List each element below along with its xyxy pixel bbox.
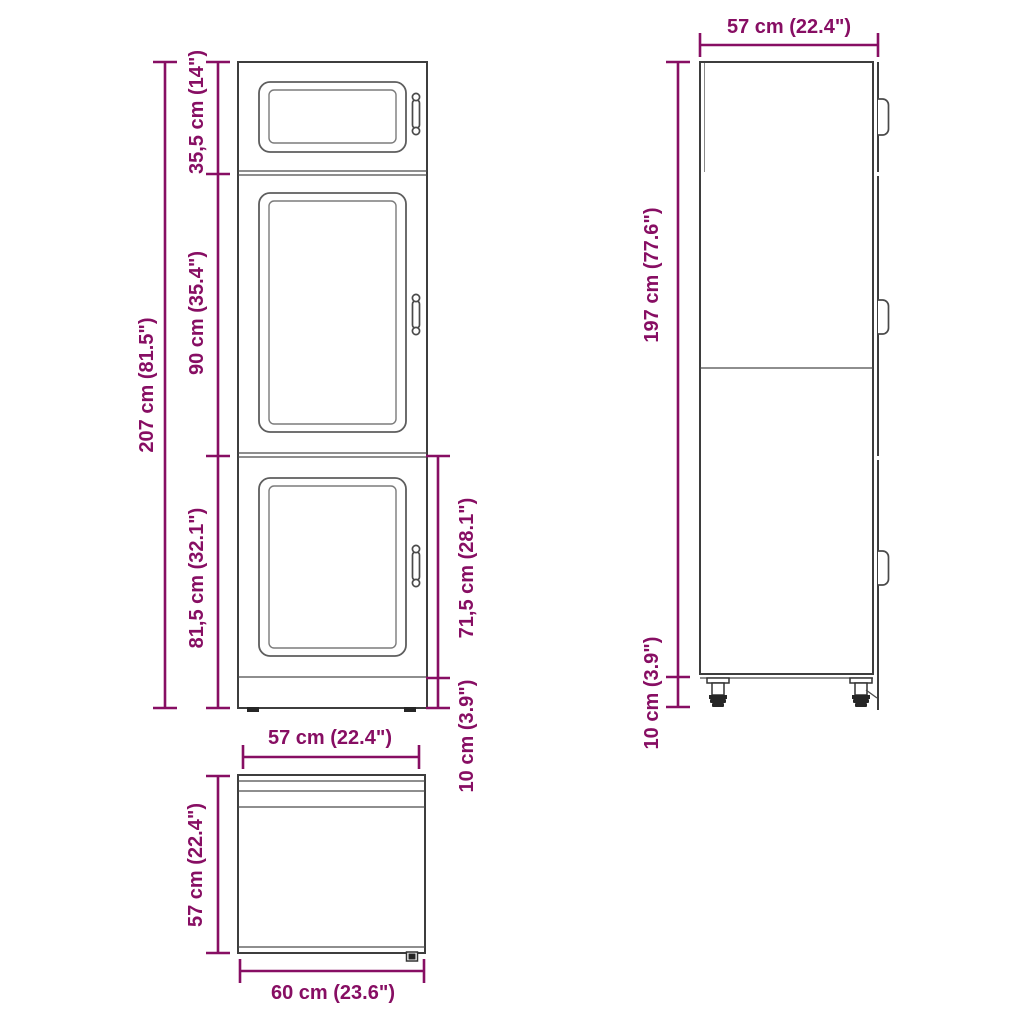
label-side-depth: 57 cm (22.4") [727, 16, 851, 38]
front-right-foot [404, 707, 416, 712]
label-carcass-height: 197 cm (77.6") [641, 207, 663, 342]
front-top-door-handle-icon [412, 93, 419, 134]
side-middle-handle-icon [878, 300, 889, 334]
front-view [238, 62, 427, 712]
top-view [238, 775, 425, 961]
front-carcass [238, 62, 427, 708]
label-total-width: 60 cm (23.6") [271, 982, 395, 1004]
drawing-canvas: 207 cm (81.5") 35,5 cm (14") 90 cm (35.4… [0, 0, 1024, 1024]
label-total-height: 207 cm (81.5") [136, 317, 158, 452]
cabinet-dimension-drawing: 207 cm (81.5") 35,5 cm (14") 90 cm (35.4… [0, 0, 1024, 1024]
label-top-door-height: 35,5 cm (14") [186, 50, 208, 174]
top-view-handle-icon [407, 952, 418, 961]
label-lower-section-height: 81,5 cm (32.1") [186, 508, 208, 649]
side-bottom-handle-icon [878, 551, 889, 585]
label-top-depth: 57 cm (22.4") [185, 803, 207, 927]
label-lower-door-height: 71,5 cm (28.1") [456, 498, 478, 639]
side-top-handle-icon [878, 99, 889, 135]
top-carcass [238, 775, 425, 953]
label-top-width: 57 cm (22.4") [268, 727, 392, 749]
side-view [700, 62, 889, 710]
side-back-leg [707, 678, 729, 707]
front-left-foot [247, 707, 259, 712]
front-middle-door-handle-icon [412, 294, 419, 334]
label-leg-height: 10 cm (3.9") [641, 637, 663, 750]
front-bottom-door-handle-icon [412, 545, 419, 586]
label-middle-door-height: 90 cm (35.4") [186, 251, 208, 375]
label-plinth-height: 10 cm (3.9") [456, 680, 478, 793]
side-front-leg [850, 678, 877, 707]
